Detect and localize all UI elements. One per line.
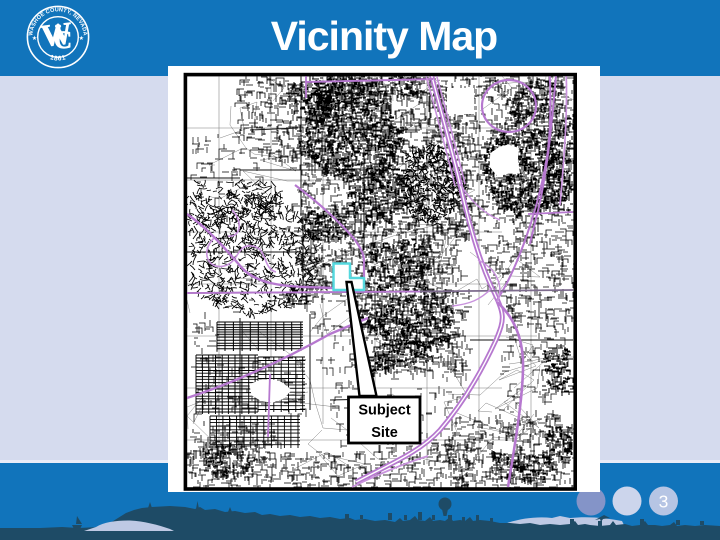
svg-text:Site: Site — [371, 425, 398, 441]
svg-text:3: 3 — [659, 492, 669, 512]
svg-text:Subject: Subject — [358, 403, 411, 419]
